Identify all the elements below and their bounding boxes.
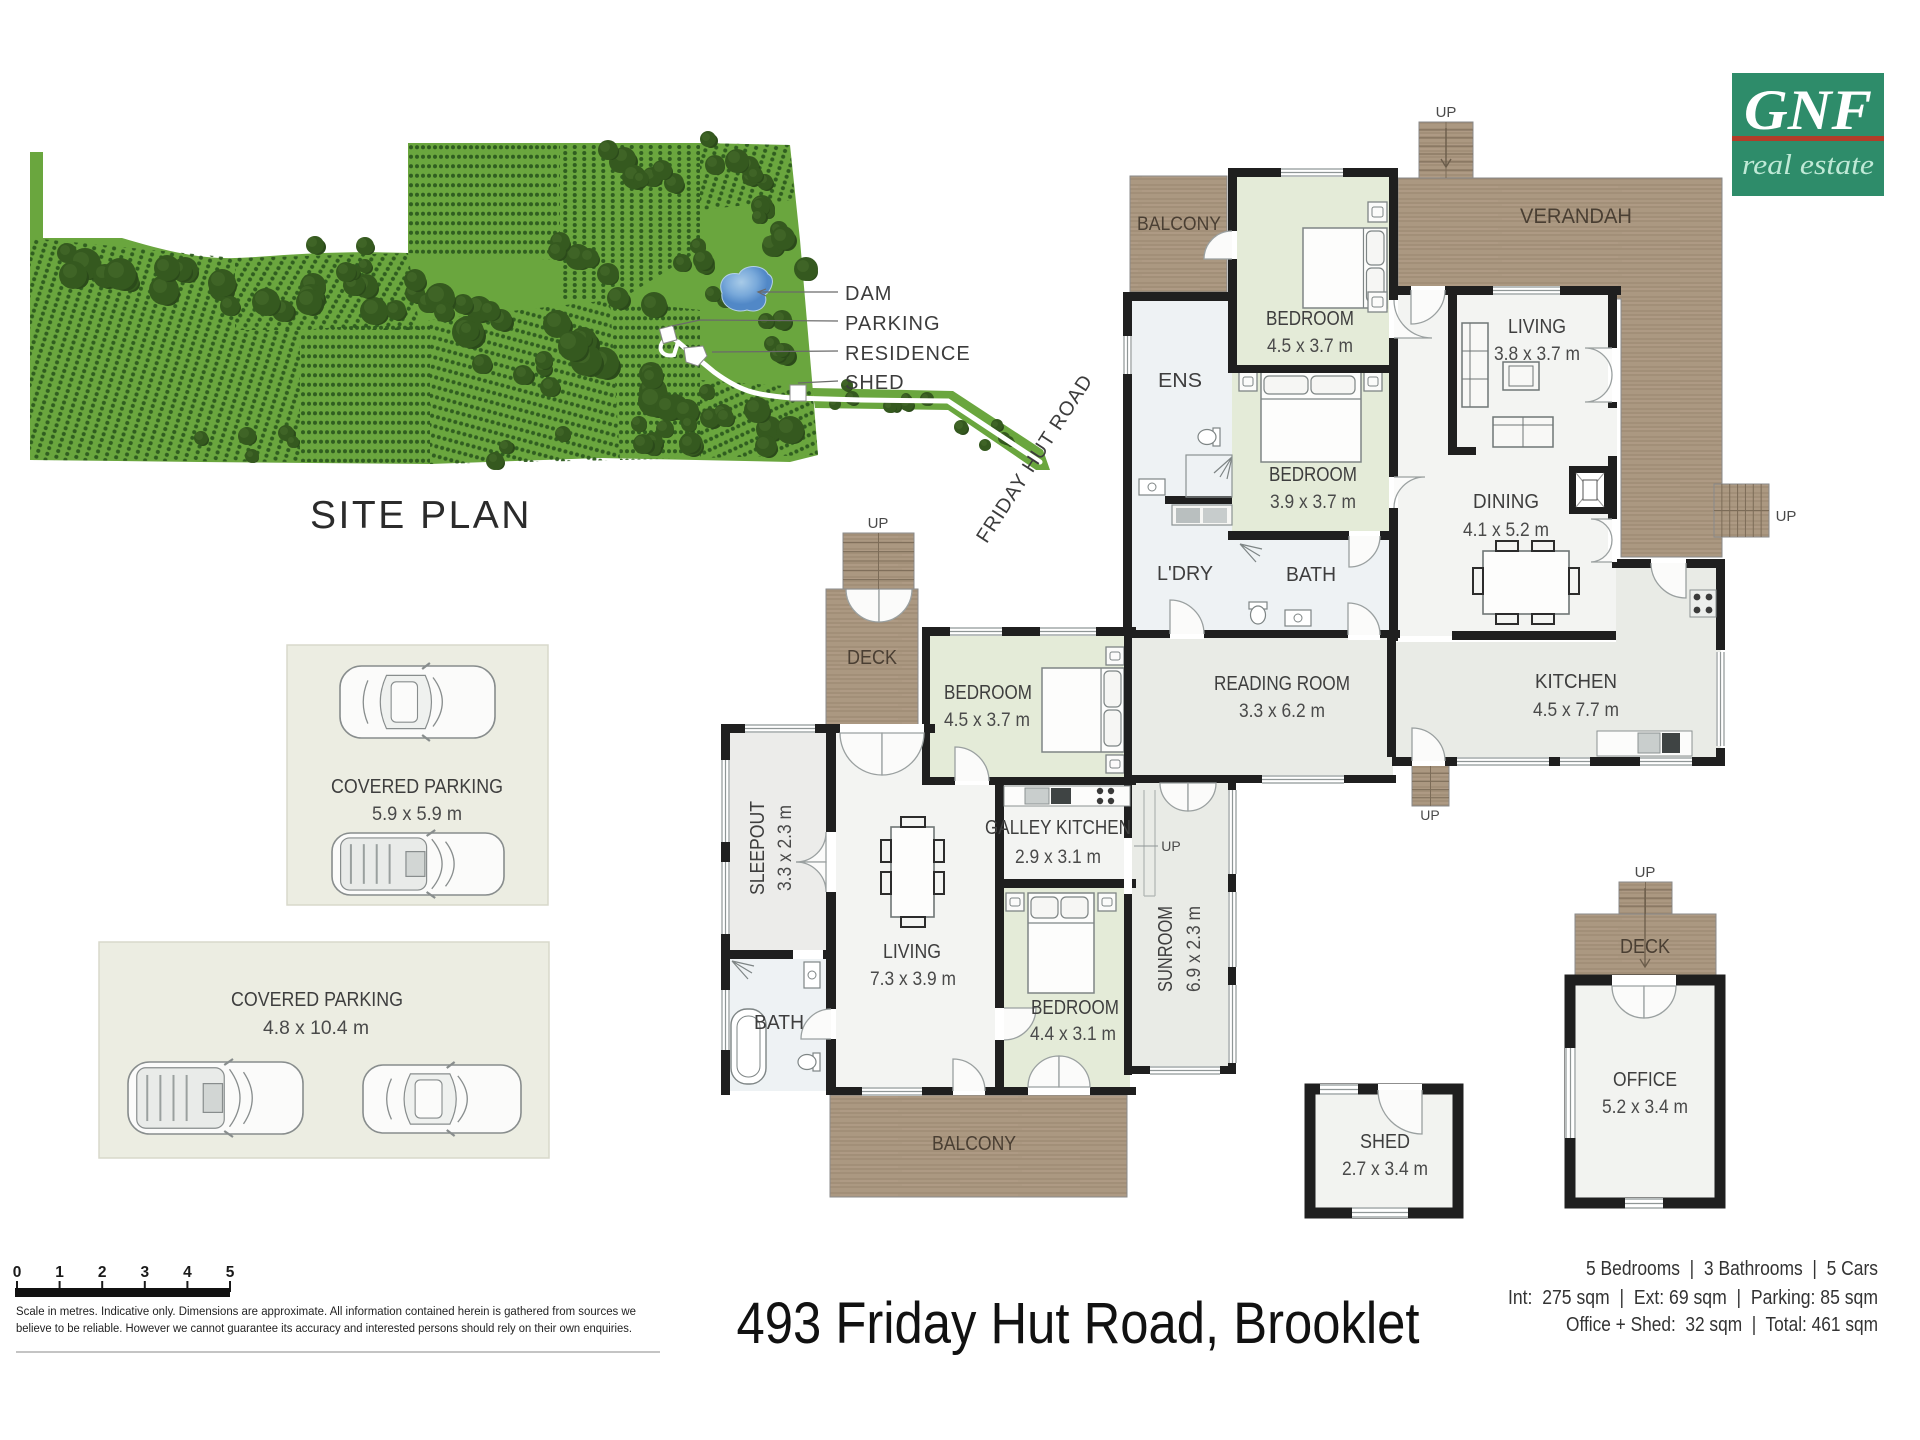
svg-text:5.2 x 3.4 m: 5.2 x 3.4 m (1602, 1096, 1688, 1118)
svg-text:GNF: GNF (1744, 79, 1872, 142)
svg-text:BALCONY: BALCONY (1137, 214, 1221, 235)
svg-text:4.1 x 5.2 m: 4.1 x 5.2 m (1463, 519, 1549, 541)
svg-text:7.3 x 3.9 m: 7.3 x 3.9 m (870, 968, 956, 990)
svg-text:4.8 x 10.4 m: 4.8 x 10.4 m (263, 1017, 369, 1039)
svg-text:COVERED PARKING: COVERED PARKING (231, 988, 403, 1011)
svg-text:4.5 x 3.7 m: 4.5 x 3.7 m (1267, 335, 1353, 357)
svg-text:3.3 x 2.3 m: 3.3 x 2.3 m (774, 805, 796, 891)
svg-text:BALCONY: BALCONY (932, 1133, 1016, 1155)
svg-text:5.9 x 5.9 m: 5.9 x 5.9 m (372, 803, 462, 825)
svg-text:ENS: ENS (1158, 369, 1202, 392)
svg-text:2.9 x 3.1 m: 2.9 x 3.1 m (1015, 846, 1101, 868)
svg-text:3.8 x 3.7 m: 3.8 x 3.7 m (1494, 343, 1580, 365)
svg-text:GALLEY KITCHEN: GALLEY KITCHEN (985, 816, 1131, 839)
svg-text:UP: UP (868, 515, 889, 532)
svg-text:L'DRY: L'DRY (1157, 562, 1213, 585)
svg-text:6.9 x 2.3 m: 6.9 x 2.3 m (1183, 906, 1205, 992)
svg-text:BATH: BATH (1286, 563, 1336, 586)
svg-text:UP: UP (1635, 864, 1656, 881)
svg-text:Int: 275 sqm | Ext: 69 sqm: Int: 275 sqm | Ext: 69 sqm | Parking: 85… (1508, 1286, 1878, 1309)
svg-text:SHED: SHED (1360, 1130, 1410, 1153)
svg-text:UP: UP (1436, 104, 1457, 121)
svg-text:BATH: BATH (754, 1011, 804, 1034)
svg-text:1: 1 (55, 1264, 64, 1281)
svg-text:SITE PLAN: SITE PLAN (310, 494, 532, 537)
svg-text:4.5 x 3.7 m: 4.5 x 3.7 m (944, 709, 1030, 731)
svg-text:BEDROOM: BEDROOM (1269, 463, 1357, 486)
svg-text:believe to be reliable. Howev: believe to be reliable. However we canno… (16, 1321, 632, 1335)
svg-text:5: 5 (226, 1264, 235, 1281)
svg-text:UP: UP (1420, 807, 1439, 823)
svg-text:LIVING: LIVING (1508, 315, 1566, 338)
svg-text:PARKING: PARKING (845, 313, 941, 335)
svg-text:READING ROOM: READING ROOM (1214, 672, 1350, 695)
svg-text:2.7 x 3.4 m: 2.7 x 3.4 m (1342, 1158, 1428, 1180)
svg-text:COVERED PARKING: COVERED PARKING (331, 775, 503, 798)
svg-text:BEDROOM: BEDROOM (1031, 996, 1119, 1019)
svg-text:4.5 x 7.7 m: 4.5 x 7.7 m (1533, 699, 1619, 721)
svg-text:UP: UP (1161, 838, 1180, 854)
svg-text:5 Bedrooms | 3 Bathrooms |: 5 Bedrooms | 3 Bathrooms | 5 Cars (1586, 1257, 1878, 1280)
svg-text:4: 4 (183, 1264, 192, 1281)
svg-text:LIVING: LIVING (883, 940, 941, 963)
svg-text:DECK: DECK (847, 647, 898, 669)
svg-text:SLEEPOUT: SLEEPOUT (746, 801, 769, 895)
svg-text:KITCHEN: KITCHEN (1535, 670, 1617, 693)
svg-text:Scale in metres. Indicative o: Scale in metres. Indicative only. Dimens… (16, 1304, 636, 1318)
svg-text:DAM: DAM (845, 283, 892, 305)
svg-text:3.3 x 6.2 m: 3.3 x 6.2 m (1239, 700, 1325, 722)
svg-text:SHED: SHED (845, 372, 905, 394)
svg-text:UP: UP (1776, 508, 1797, 525)
svg-text:2: 2 (98, 1264, 107, 1281)
svg-text:SUNROOM: SUNROOM (1154, 906, 1177, 992)
svg-text:BEDROOM: BEDROOM (944, 681, 1032, 704)
svg-text:real estate: real estate (1742, 149, 1874, 181)
svg-text:VERANDAH: VERANDAH (1520, 205, 1632, 228)
svg-text:Office + Shed: 32 sqm | Tot: Office + Shed: 32 sqm | Total: 461 sqm (1566, 1313, 1878, 1336)
svg-text:OFFICE: OFFICE (1613, 1068, 1677, 1091)
svg-text:3: 3 (140, 1264, 149, 1281)
svg-text:3.9 x 3.7 m: 3.9 x 3.7 m (1270, 491, 1356, 513)
svg-text:0: 0 (13, 1264, 22, 1281)
svg-text:DINING: DINING (1473, 490, 1539, 513)
svg-text:BEDROOM: BEDROOM (1266, 307, 1354, 330)
svg-text:493 Friday Hut Road, Brooklet: 493 Friday Hut Road, Brooklet (737, 1291, 1420, 1356)
svg-text:RESIDENCE: RESIDENCE (845, 343, 971, 365)
svg-text:4.4 x 3.1 m: 4.4 x 3.1 m (1030, 1023, 1116, 1045)
